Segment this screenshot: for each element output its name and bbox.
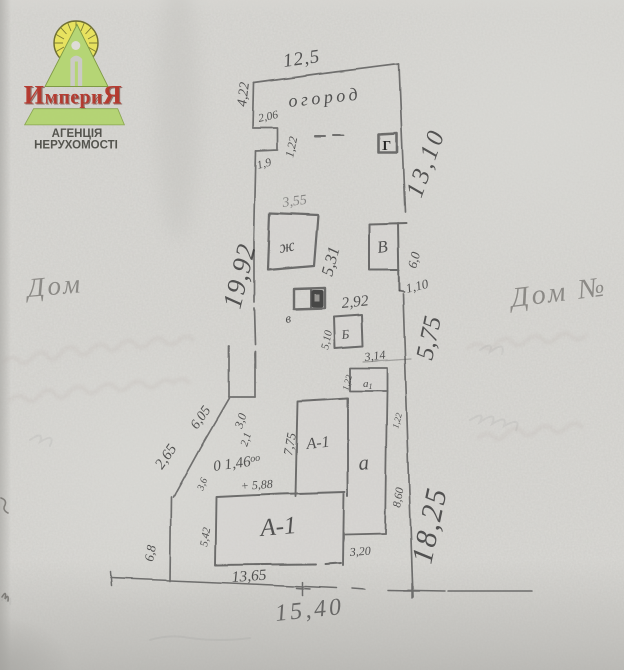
svg-text:3,20: 3,20 (348, 544, 371, 560)
svg-text:6,8: 6,8 (141, 543, 159, 562)
svg-text:2,92: 2,92 (341, 292, 370, 312)
svg-text:Дом: Дом (23, 268, 84, 303)
svg-text:3,14: 3,14 (363, 348, 387, 365)
svg-text:4,22: 4,22 (235, 81, 253, 107)
svg-text:Г: Г (383, 138, 392, 153)
svg-text:13,65: 13,65 (231, 567, 267, 586)
svg-text:а: а (357, 450, 370, 475)
svg-text:+ 5,88: + 5,88 (240, 477, 273, 493)
svg-text:АГЕНЦІЯ: АГЕНЦІЯ (52, 128, 103, 140)
svg-text:НЕРУХОМОСТІ: НЕРУХОМОСТІ (34, 140, 118, 152)
svg-text:А-1: А-1 (257, 512, 297, 542)
svg-text:А-1: А-1 (305, 434, 331, 453)
